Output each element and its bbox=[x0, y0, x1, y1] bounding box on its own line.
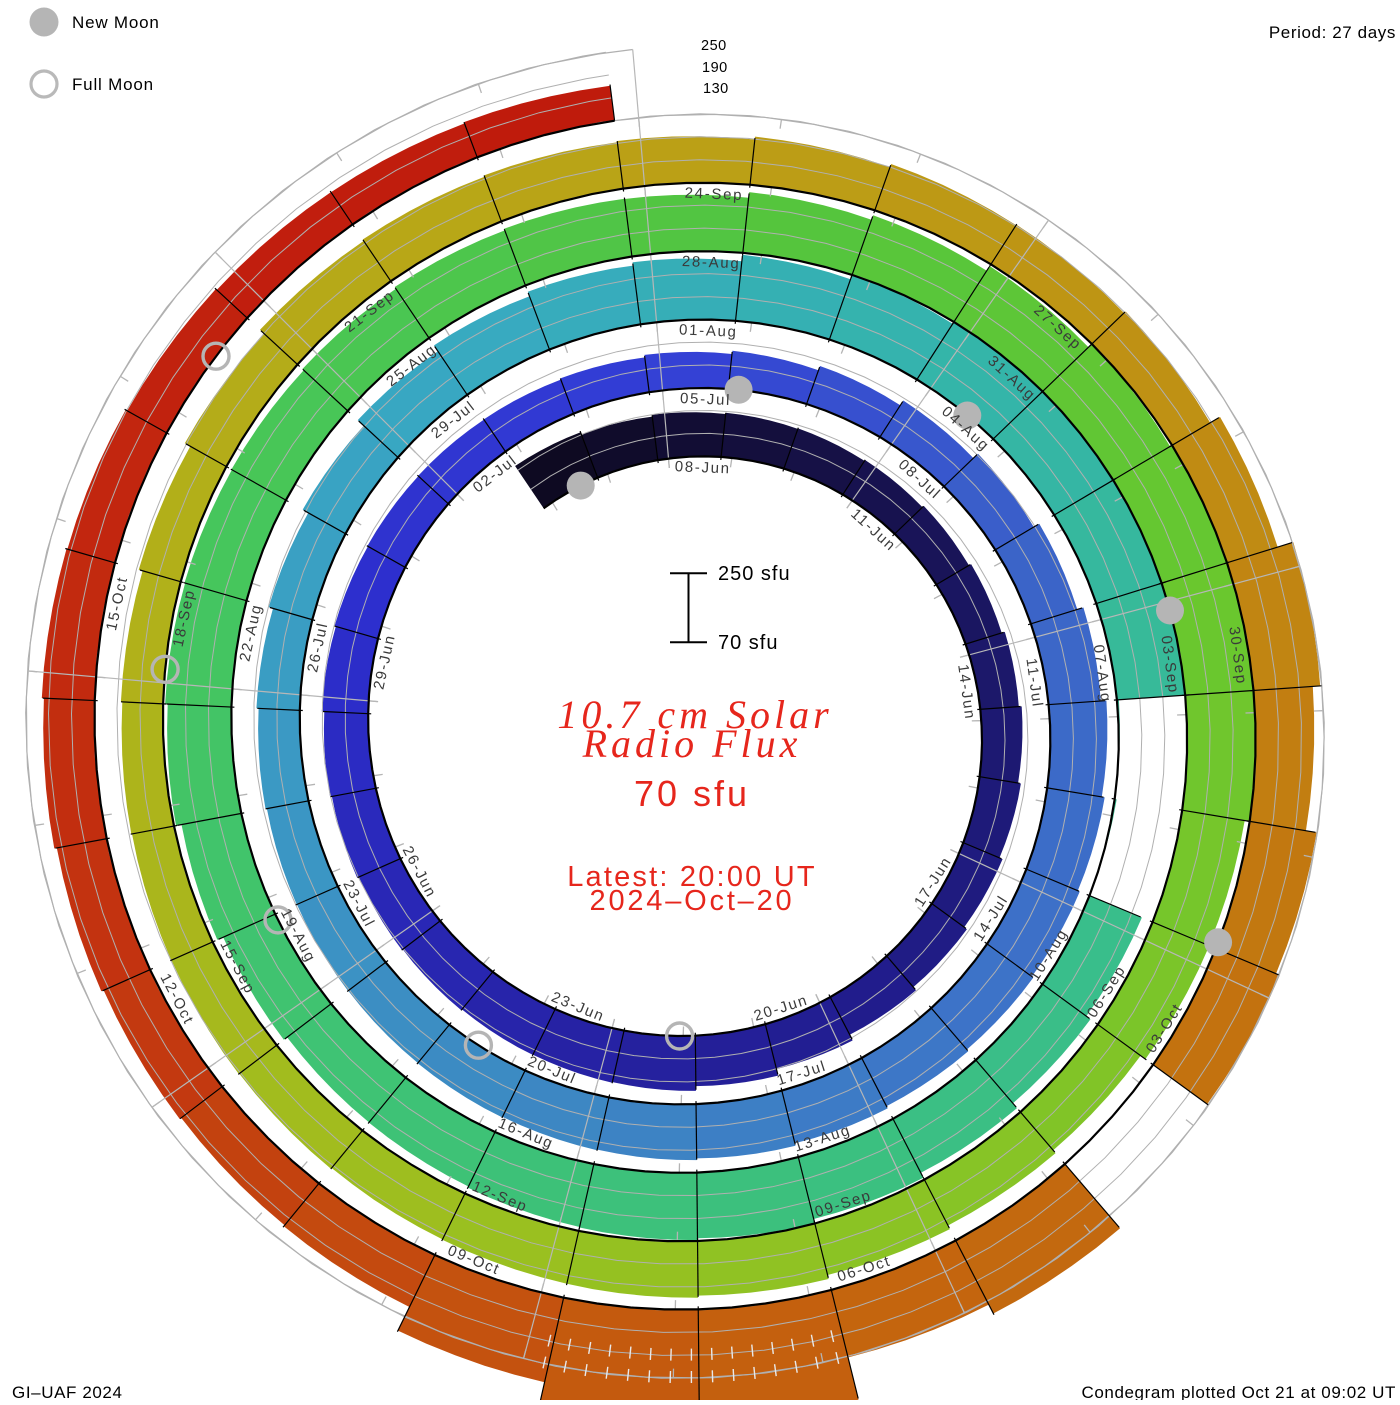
svg-text:New Moon: New Moon bbox=[72, 13, 160, 32]
svg-text:2024–Oct–20: 2024–Oct–20 bbox=[590, 885, 795, 917]
svg-text:24-Sep: 24-Sep bbox=[684, 185, 743, 204]
svg-text:Condegram plotted Oct 21 at 09: Condegram plotted Oct 21 at 09:02 UT bbox=[1081, 1383, 1396, 1400]
svg-text:Full Moon: Full Moon bbox=[72, 75, 154, 94]
svg-text:05-Jul: 05-Jul bbox=[680, 390, 732, 409]
svg-text:250 sfu: 250 sfu bbox=[718, 563, 791, 585]
svg-text:130: 130 bbox=[703, 81, 729, 97]
svg-text:28-Aug: 28-Aug bbox=[682, 253, 741, 272]
svg-text:70 sfu: 70 sfu bbox=[718, 632, 778, 654]
svg-text:Radio Flux: Radio Flux bbox=[582, 721, 802, 766]
svg-text:01-Aug: 01-Aug bbox=[679, 321, 738, 340]
svg-text:08-Jun: 08-Jun bbox=[674, 458, 731, 477]
svg-text:Period: 27 days: Period: 27 days bbox=[1269, 23, 1396, 42]
svg-text:250: 250 bbox=[701, 38, 727, 54]
svg-text:GI–UAF 2024: GI–UAF 2024 bbox=[12, 1383, 123, 1400]
svg-text:70 sfu: 70 sfu bbox=[634, 773, 750, 814]
svg-text:190: 190 bbox=[702, 60, 728, 76]
